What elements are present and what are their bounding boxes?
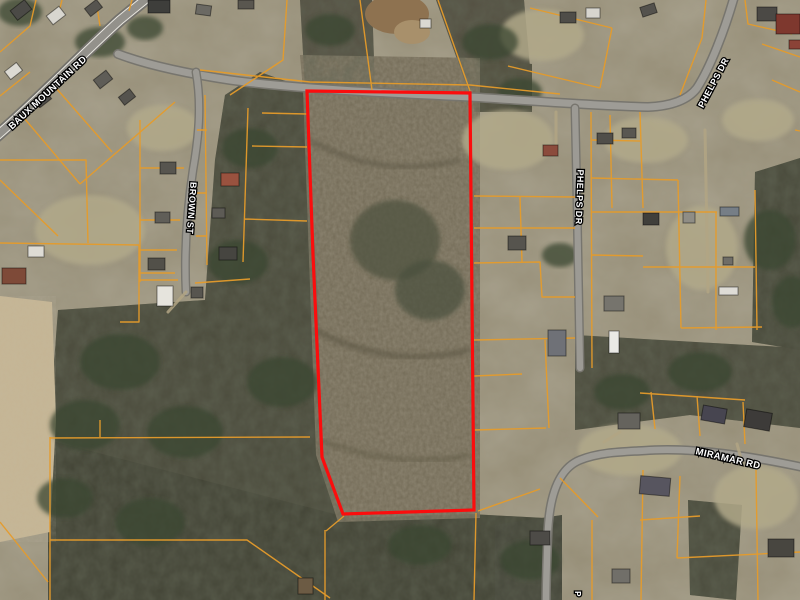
map-viewport[interactable]: BAUX MOUNTAIN RDBROWN STPHELPS DRPHELPS … <box>0 0 800 600</box>
building <box>639 476 670 497</box>
building <box>238 0 254 9</box>
building <box>530 531 550 545</box>
building <box>155 212 170 223</box>
road-label-partial-bottom: P <box>573 591 582 597</box>
building <box>160 162 176 174</box>
building <box>586 8 600 18</box>
building <box>612 569 630 583</box>
building <box>28 246 44 257</box>
building <box>508 236 526 250</box>
building <box>560 12 576 23</box>
road-label-phelps-dr-center: PHELPS DR <box>574 169 586 225</box>
building <box>191 287 203 298</box>
building <box>609 331 619 353</box>
building <box>643 213 659 225</box>
building <box>720 207 739 216</box>
aerial-map[interactable]: BAUX MOUNTAIN RDBROWN STPHELPS DRPHELPS … <box>0 0 800 600</box>
building <box>604 296 624 311</box>
building <box>597 133 613 144</box>
building <box>757 7 777 21</box>
building <box>219 247 237 260</box>
building <box>195 4 211 16</box>
building <box>2 268 26 284</box>
road-phelps-dr-south <box>575 108 580 368</box>
building <box>768 539 794 557</box>
building <box>548 330 566 356</box>
building <box>157 286 173 306</box>
building <box>719 287 738 295</box>
building <box>683 212 695 223</box>
building <box>148 0 170 13</box>
building <box>776 14 800 34</box>
building <box>618 413 640 429</box>
building <box>789 40 800 49</box>
building <box>298 578 313 594</box>
building <box>212 208 225 218</box>
building <box>221 173 239 186</box>
building <box>420 19 431 28</box>
building <box>622 128 636 138</box>
building <box>744 409 773 431</box>
building <box>543 145 558 156</box>
building <box>148 258 165 270</box>
building <box>723 257 733 265</box>
